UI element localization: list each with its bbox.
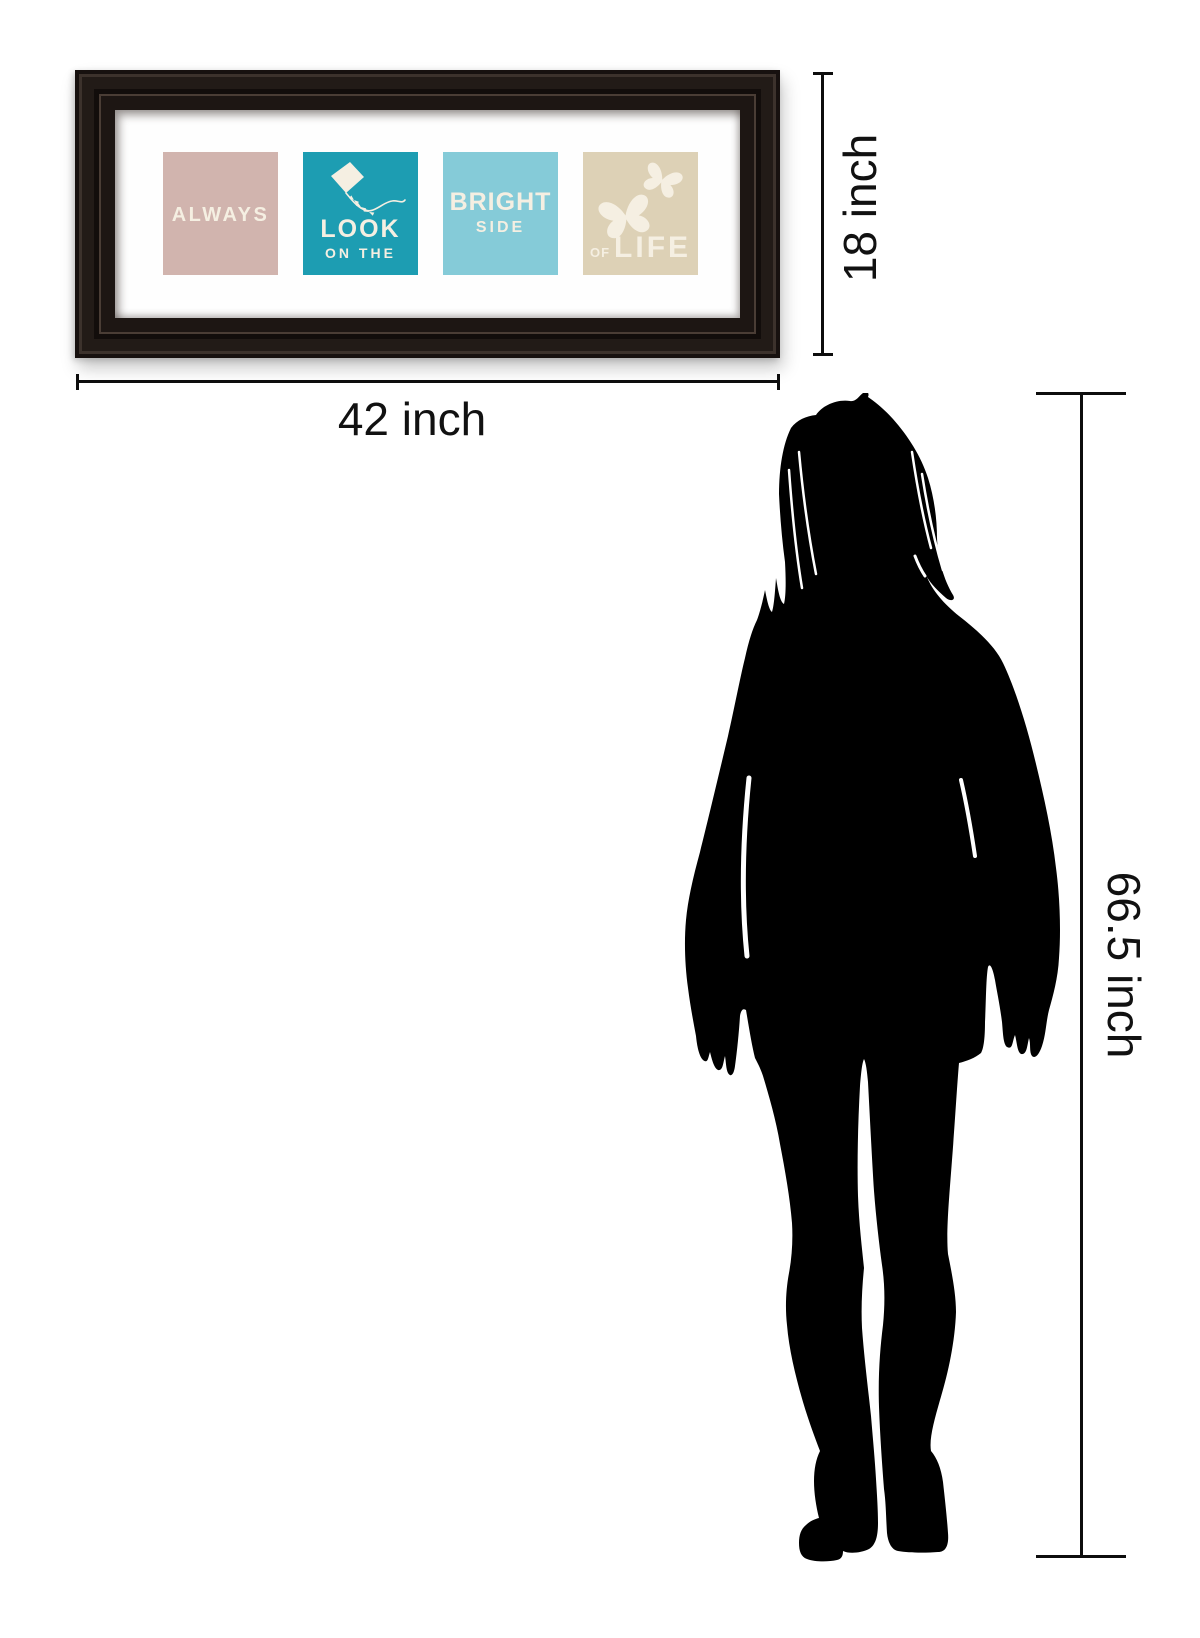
frame-height-dimension-line (821, 72, 824, 356)
look-on-the-panel: LOOK ON THE (303, 152, 418, 275)
product-dimension-diagram: ALWAYS LOOK ON THE BRIGHT SIDE (0, 0, 1200, 1638)
frame-width-dimension-label: 42 inch (76, 392, 748, 446)
person-height-dimension-label: 66.5 inch (1097, 872, 1151, 1059)
of-text: OF (590, 246, 610, 259)
frame-height-dimension-label: 18 inch (833, 134, 887, 282)
on-the-text: ON THE (303, 246, 418, 260)
frame-width-dimension-line (76, 380, 780, 383)
of-life-text: OF LIFE (583, 233, 698, 263)
of-life-panel: OF LIFE (583, 152, 698, 275)
person-height-dimension-line (1080, 392, 1083, 1558)
art-panels: ALWAYS LOOK ON THE BRIGHT SIDE (163, 152, 698, 275)
bright-text: BRIGHT (443, 190, 558, 215)
bright-side-panel: BRIGHT SIDE (443, 152, 558, 275)
life-text: LIFE (614, 233, 691, 263)
frame-mat: ALWAYS LOOK ON THE BRIGHT SIDE (115, 110, 740, 318)
look-text: LOOK (303, 217, 418, 242)
picture-frame: ALWAYS LOOK ON THE BRIGHT SIDE (75, 70, 780, 358)
side-text: SIDE (443, 220, 558, 236)
woman-silhouette (655, 393, 1075, 1568)
kite-icon (319, 160, 409, 218)
always-text: ALWAYS (172, 204, 270, 227)
always-panel: ALWAYS (163, 152, 278, 275)
